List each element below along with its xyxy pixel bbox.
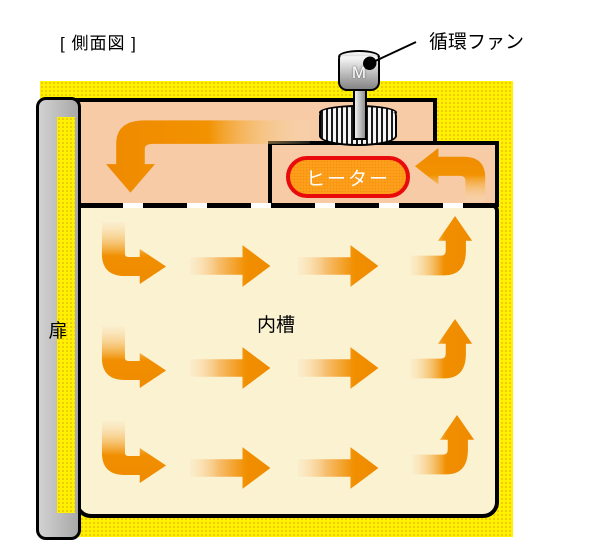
flow-right-icon-row3-a (190, 446, 272, 490)
fan-shaft-icon (353, 85, 367, 140)
chamber-label: 内槽 (257, 310, 295, 337)
flow-right-icon-row2-b (298, 346, 380, 390)
diagram-canvas: ヒーター M [ 側面図 ] 循環ファン 扉 内槽 (0, 0, 600, 559)
flow-bend-right-icon-row1 (97, 222, 171, 284)
flow-bend-up-icon-row1 (410, 216, 476, 282)
fan-leader-line (340, 28, 440, 73)
heater-flow-arrow-icon (415, 148, 487, 202)
fan-label: 循環ファン (429, 27, 524, 54)
plenum-flow-arrow-icon (106, 112, 310, 196)
flow-bend-up-icon-row2 (410, 319, 476, 385)
flow-bend-right-icon-row2 (97, 326, 171, 388)
flow-right-icon-row3-b (298, 446, 380, 490)
flow-right-icon-row2-a (190, 346, 272, 390)
flow-right-icon-row1-b (298, 244, 380, 288)
door-label: 扉 (37, 316, 79, 343)
chamber-top-dashed-divider (79, 203, 495, 208)
door-inner-strip (57, 117, 75, 513)
flow-right-icon-row1-a (190, 244, 272, 288)
page-title: [ 側面図 ] (60, 29, 137, 54)
flow-bend-right-icon-row3 (97, 421, 171, 483)
flow-bend-up-icon-row3 (412, 415, 478, 481)
